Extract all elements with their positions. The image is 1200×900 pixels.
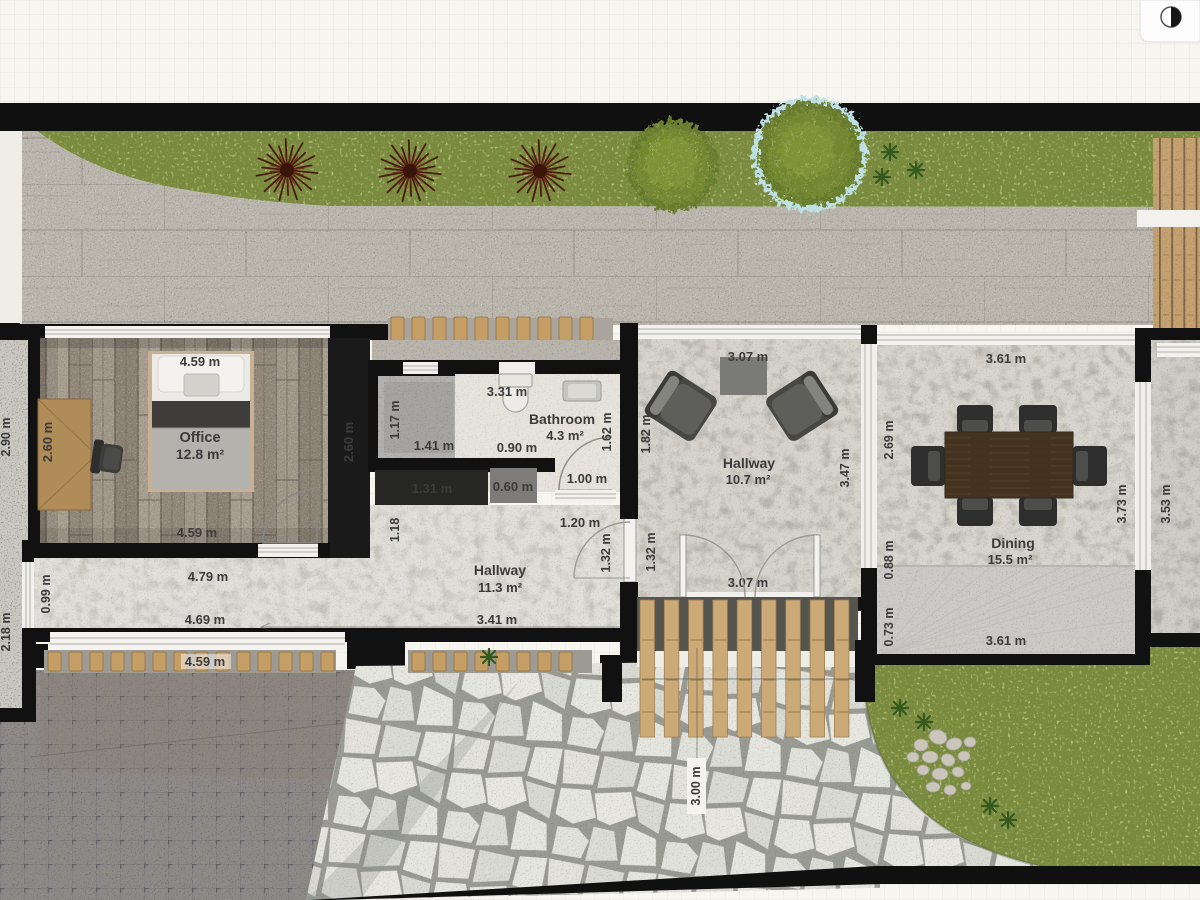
svg-text:4.59 m: 4.59 m — [185, 654, 225, 669]
svg-text:0.60 m: 0.60 m — [493, 479, 533, 494]
svg-text:3.61 m: 3.61 m — [986, 633, 1026, 648]
svg-text:4.3 m²: 4.3 m² — [546, 428, 584, 443]
svg-text:3.61 m: 3.61 m — [986, 351, 1026, 366]
svg-text:3.73 m: 3.73 m — [1115, 485, 1129, 524]
svg-text:Dining: Dining — [991, 535, 1035, 551]
svg-text:0.73 m: 0.73 m — [882, 608, 896, 647]
svg-text:0.99 m: 0.99 m — [39, 575, 53, 614]
svg-text:3.07 m: 3.07 m — [728, 575, 768, 590]
svg-text:1.31 m: 1.31 m — [412, 481, 452, 496]
svg-text:0.90 m: 0.90 m — [497, 440, 537, 455]
svg-text:1.32 m: 1.32 m — [599, 534, 613, 573]
svg-text:2.60 m: 2.60 m — [341, 422, 356, 462]
svg-text:4.79 m: 4.79 m — [188, 569, 228, 584]
svg-text:4.59 m: 4.59 m — [177, 525, 217, 540]
svg-text:1.17 m: 1.17 m — [388, 401, 402, 440]
svg-text:2.18 m: 2.18 m — [0, 613, 13, 652]
svg-text:1.32 m: 1.32 m — [644, 533, 658, 572]
svg-text:3.47 m: 3.47 m — [838, 449, 852, 488]
svg-text:3.53 m: 3.53 m — [1159, 485, 1173, 524]
svg-text:1.00 m: 1.00 m — [567, 471, 607, 486]
svg-text:4.69 m: 4.69 m — [185, 612, 225, 627]
svg-text:1.62 m: 1.62 m — [600, 413, 614, 452]
svg-text:Hallway: Hallway — [474, 562, 526, 578]
svg-text:10.7 m²: 10.7 m² — [726, 472, 771, 487]
svg-text:1.18: 1.18 — [388, 518, 402, 542]
svg-text:11.3 m²: 11.3 m² — [478, 580, 523, 595]
svg-text:1.20 m: 1.20 m — [560, 515, 600, 530]
svg-text:Office: Office — [179, 430, 220, 446]
svg-text:3.00 m: 3.00 m — [689, 767, 703, 806]
svg-text:0.88 m: 0.88 m — [882, 541, 896, 580]
svg-text:2.60 m: 2.60 m — [40, 422, 55, 462]
svg-text:1.82 m: 1.82 m — [639, 415, 653, 454]
svg-text:Hallway: Hallway — [723, 455, 775, 471]
svg-text:3.31 m: 3.31 m — [487, 384, 527, 399]
svg-text:1.41 m: 1.41 m — [414, 438, 454, 453]
svg-text:2.69 m: 2.69 m — [882, 421, 896, 460]
svg-text:4.59 m: 4.59 m — [180, 354, 220, 369]
svg-text:15.5 m²: 15.5 m² — [988, 552, 1033, 567]
svg-text:3.41 m: 3.41 m — [477, 612, 517, 627]
svg-text:2.90 m: 2.90 m — [0, 418, 13, 457]
svg-text:12.8 m²: 12.8 m² — [176, 446, 225, 462]
svg-text:3.07 m: 3.07 m — [728, 349, 768, 364]
svg-text:Bathroom: Bathroom — [529, 411, 595, 427]
